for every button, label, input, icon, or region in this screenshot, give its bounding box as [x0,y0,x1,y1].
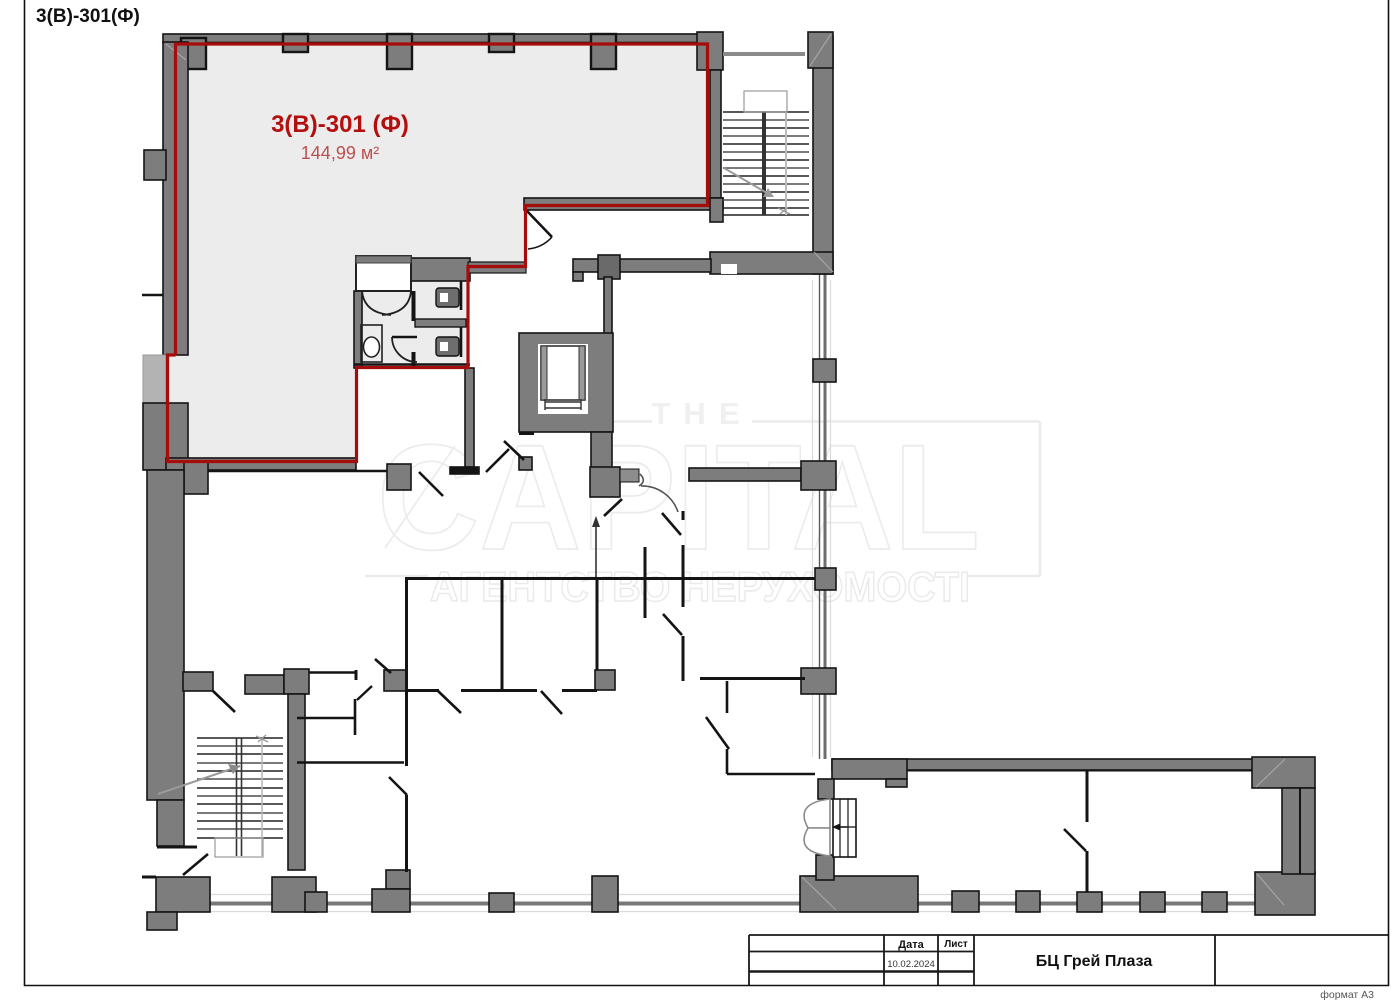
svg-text:3(В)-301 (Ф): 3(В)-301 (Ф) [271,111,409,138]
svg-text:144,99 м²: 144,99 м² [301,143,379,163]
svg-text:БЦ Грей Плаза: БЦ Грей Плаза [1036,953,1153,970]
svg-text:Дата: Дата [898,939,924,951]
svg-text:формат А3: формат А3 [1320,989,1374,1001]
svg-text:10.02.2024: 10.02.2024 [887,959,935,970]
svg-text:АГЕНТСТВО НЕРУХОМОСТІ: АГЕНТСТВО НЕРУХОМОСТІ [430,563,970,610]
svg-text:Лист: Лист [944,939,968,950]
svg-text:3(В)-301(Ф): 3(В)-301(Ф) [36,6,140,27]
